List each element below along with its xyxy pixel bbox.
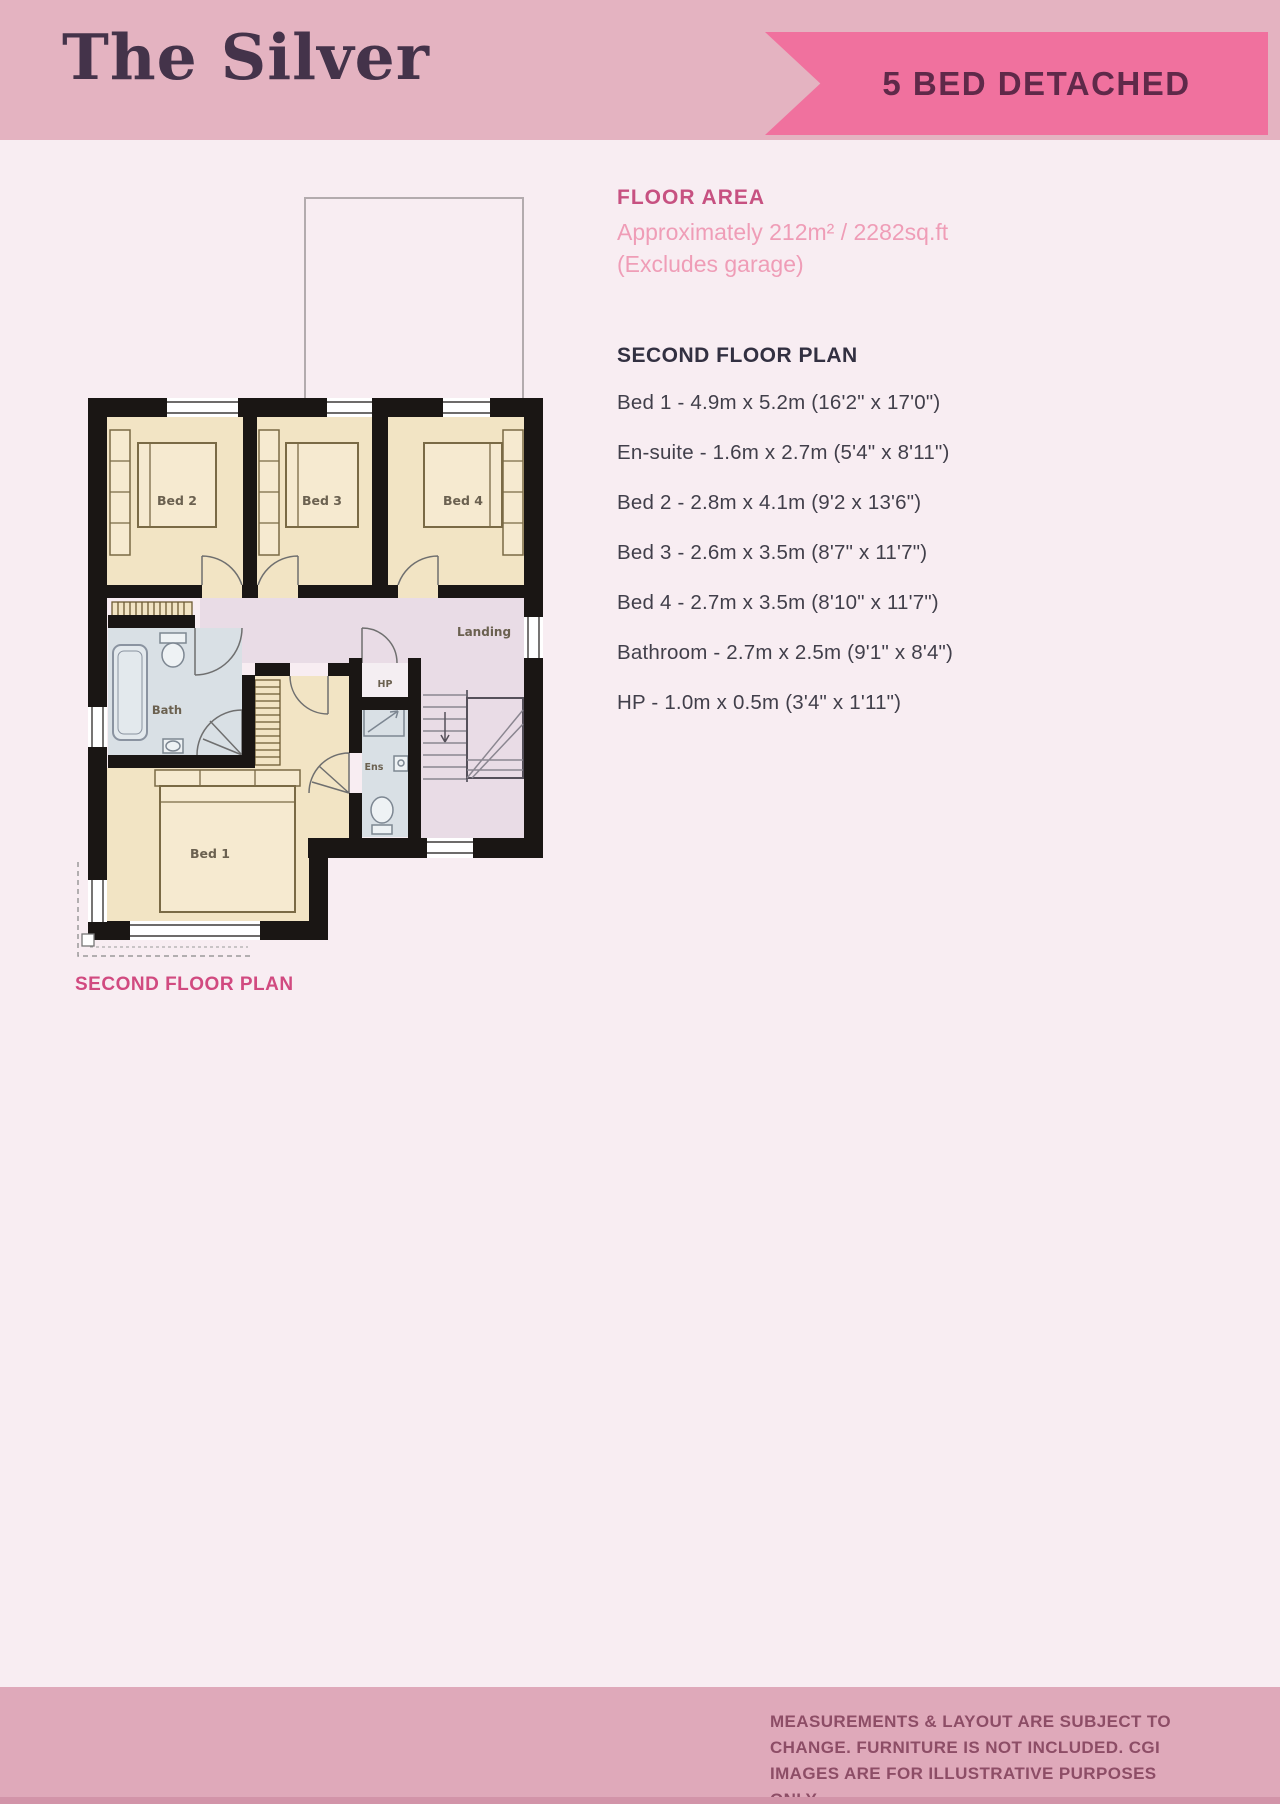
disclaimer-text: MEASUREMENTS & LAYOUT ARE SUBJECT TO CHA…	[770, 1709, 1200, 1804]
room-dimension-item: Bed 4 - 2.7m x 3.5m (8'10" x 11'7")	[617, 592, 953, 614]
property-type-label: 5 BED DETACHED	[842, 65, 1190, 103]
room-dimension-list: Bed 1 - 4.9m x 5.2m (16'2" x 17'0") En-s…	[617, 392, 953, 742]
bottom-edge-strip	[0, 1797, 1280, 1804]
header-band: The Silver 5 BED DETACHED	[0, 0, 1280, 140]
ensuite-sink	[394, 756, 408, 771]
bed1-furniture	[155, 770, 300, 912]
ensuite-toilet	[371, 797, 393, 834]
sink	[163, 739, 183, 753]
roof-outline	[305, 198, 523, 403]
landing-room-label: Landing	[457, 625, 511, 639]
bed2-room-label: Bed 2	[157, 493, 197, 508]
floor-plan: Bed 2 Bed 3 Bed 4 Bed 1 Bath HP Ens Land…	[60, 190, 585, 965]
floor-area-value: Approximately 212m² / 2282sq.ft	[617, 219, 948, 246]
bed3-room-label: Bed 3	[302, 493, 342, 508]
ensuite-room-label: Ens	[365, 762, 384, 773]
room-dimension-item: Bed 2 - 2.8m x 4.1m (9'2 x 13'6")	[617, 492, 953, 514]
room-dimension-item: HP - 1.0m x 0.5m (3'4" x 1'11")	[617, 692, 953, 714]
bed1-room-label: Bed 1	[190, 846, 230, 861]
wardrobe	[255, 680, 280, 765]
room-dimension-item: Bed 1 - 4.9m x 5.2m (16'2" x 17'0")	[617, 392, 953, 414]
brochure-page: The Silver 5 BED DETACHED FLOOR AREA App…	[0, 0, 1280, 1804]
hp-room-label: HP	[378, 679, 393, 690]
room-dimension-item: Bathroom - 2.7m x 2.5m (9'1" x 8'4")	[617, 642, 953, 664]
floor-area-note: (Excludes garage)	[617, 251, 804, 278]
property-type-ribbon: 5 BED DETACHED	[765, 32, 1268, 135]
bathtub	[113, 645, 147, 740]
plan-details-heading: SECOND FLOOR PLAN	[617, 344, 858, 368]
bed4-room-label: Bed 4	[443, 493, 483, 508]
floor-area-heading: FLOOR AREA	[617, 186, 765, 210]
bath-room-label: Bath	[152, 703, 182, 717]
footer-band: MEASUREMENTS & LAYOUT ARE SUBJECT TO CHA…	[0, 1687, 1280, 1804]
page-title: The Silver	[62, 20, 430, 94]
room-dimension-item: Bed 3 - 2.6m x 3.5m (8'7" x 11'7")	[617, 542, 953, 564]
room-dimension-item: En-suite - 1.6m x 2.7m (5'4" x 8'11")	[617, 442, 953, 464]
toilet	[160, 633, 186, 667]
plan-caption: SECOND FLOOR PLAN	[75, 974, 294, 996]
